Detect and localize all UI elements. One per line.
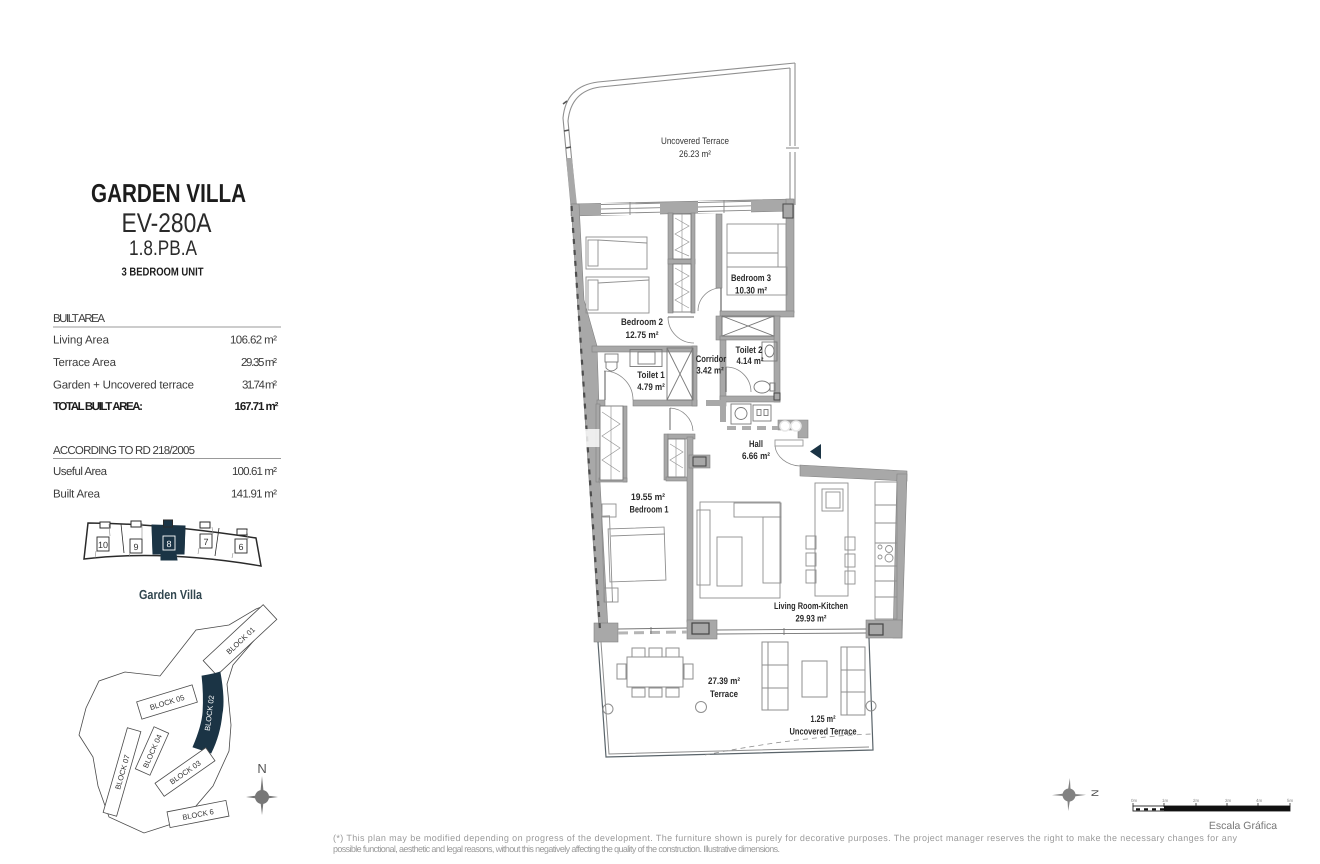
svg-text:2m: 2m — [1193, 798, 1200, 803]
svg-text:EV-280A: EV-280A — [122, 208, 212, 238]
svg-text:10: 10 — [98, 540, 108, 550]
svg-text:Living Room-Kitchen: Living Room-Kitchen — [774, 601, 848, 612]
svg-text:3 BEDROOM UNIT: 3 BEDROOM UNIT — [122, 267, 204, 279]
svg-text:100.61 m²: 100.61 m² — [232, 466, 277, 478]
svg-text:(*) This plan may be modified: (*) This plan may be modified depending … — [333, 833, 1237, 843]
svg-text:106.62 m²: 106.62 m² — [230, 335, 277, 347]
svg-text:Useful Area: Useful Area — [53, 466, 108, 478]
svg-text:27.39 m²: 27.39 m² — [708, 676, 740, 687]
svg-text:4m: 4m — [1256, 798, 1263, 803]
svg-text:1.25 m²: 1.25 m² — [811, 714, 836, 725]
svg-text:TOTAL BUILT AREA:: TOTAL BUILT AREA: — [53, 401, 143, 413]
svg-text:29.35 m²: 29.35 m² — [241, 357, 277, 369]
svg-text:6.66 m²: 6.66 m² — [742, 451, 770, 462]
svg-text:N: N — [1089, 790, 1100, 797]
svg-text:Uncovered Terrace: Uncovered Terrace — [790, 727, 857, 738]
svg-text:19.55 m²: 19.55 m² — [631, 492, 665, 503]
svg-text:26.23 m²: 26.23 m² — [679, 149, 711, 160]
svg-text:141.91 m²: 141.91 m² — [231, 489, 277, 501]
svg-text:ACCORDING TO RD 218/2005: ACCORDING TO RD 218/2005 — [53, 445, 195, 457]
svg-text:10.30 m²: 10.30 m² — [735, 286, 767, 297]
svg-text:0m: 0m — [1131, 798, 1138, 803]
svg-text:29.93 m²: 29.93 m² — [796, 614, 827, 625]
svg-text:Hall: Hall — [749, 439, 763, 450]
svg-text:Bedroom 3: Bedroom 3 — [731, 273, 771, 284]
svg-text:Terrace: Terrace — [710, 689, 738, 700]
svg-text:Bedroom 1: Bedroom 1 — [630, 505, 670, 516]
svg-text:Bedroom 2: Bedroom 2 — [621, 317, 663, 328]
svg-text:Garden Villa: Garden Villa — [139, 587, 203, 602]
svg-text:Built Area: Built Area — [53, 489, 101, 501]
svg-text:5m: 5m — [1287, 798, 1294, 803]
svg-text:possible functional, aesthetic: possible functional, aesthetic and legal… — [333, 844, 780, 854]
svg-text:Living Area: Living Area — [53, 335, 110, 347]
svg-text:Corridor: Corridor — [696, 354, 727, 365]
svg-text:6: 6 — [238, 542, 243, 552]
svg-text:8: 8 — [166, 539, 171, 549]
svg-text:12.75 m²: 12.75 m² — [626, 330, 659, 341]
svg-text:1.8.PB.A: 1.8.PB.A — [129, 237, 197, 260]
svg-text:Toilet 2: Toilet 2 — [736, 345, 763, 356]
svg-text:Terrace Area: Terrace Area — [53, 357, 117, 369]
svg-text:4.14 m²: 4.14 m² — [737, 356, 764, 367]
svg-text:167.71 m²: 167.71 m² — [235, 401, 279, 413]
svg-text:Uncovered Terrace: Uncovered Terrace — [661, 136, 729, 147]
svg-text:BUILT AREA: BUILT AREA — [53, 313, 105, 325]
svg-text:9: 9 — [133, 542, 138, 552]
svg-text:4.79 m²: 4.79 m² — [637, 382, 665, 393]
svg-text:7: 7 — [203, 537, 208, 547]
svg-text:1m: 1m — [1162, 798, 1169, 803]
svg-text:3.42 m²: 3.42 m² — [696, 366, 724, 377]
svg-text:31.74 m²: 31.74 m² — [242, 380, 277, 392]
svg-text:GARDEN VILLA: GARDEN VILLA — [91, 178, 246, 208]
svg-text:Garden + Uncovered terrace: Garden + Uncovered terrace — [53, 380, 194, 392]
svg-text:Toilet 1: Toilet 1 — [637, 370, 665, 381]
svg-text:Escala Gráfica: Escala Gráfica — [1209, 820, 1277, 832]
svg-text:3m: 3m — [1225, 798, 1232, 803]
svg-text:N: N — [257, 761, 266, 776]
